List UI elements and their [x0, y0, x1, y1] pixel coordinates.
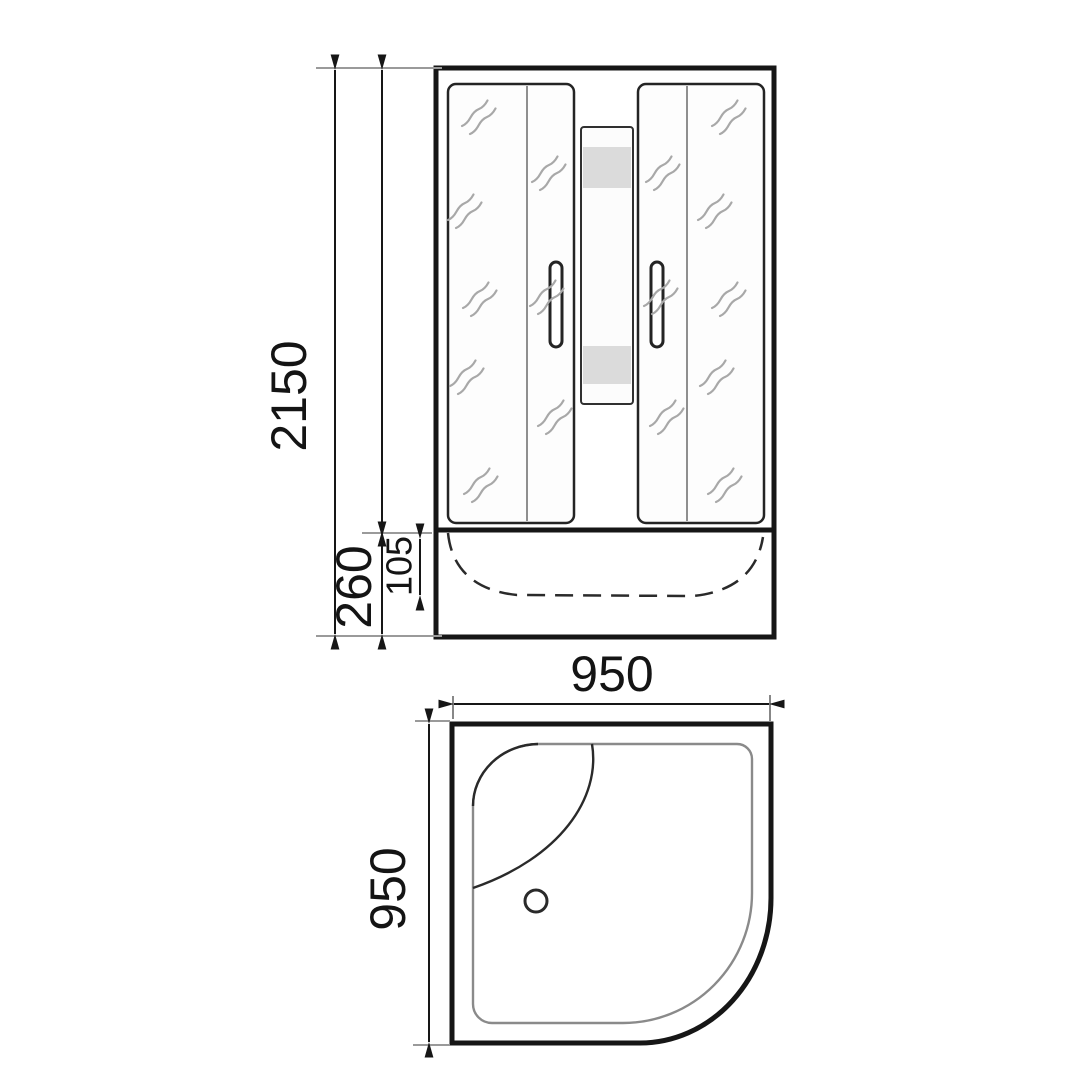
- plan-view: [452, 724, 771, 1043]
- drawing-page: 2150 260 105 950 950: [0, 0, 1080, 1080]
- dim-label-tray-inner-depth: 105: [379, 536, 420, 596]
- tray-outer-outline: [452, 724, 771, 1043]
- center-column-band-bottom: [583, 346, 631, 384]
- dim-label-total-height: 2150: [261, 340, 317, 451]
- front-view: [436, 68, 774, 637]
- dim-label-plan-depth: 950: [360, 847, 416, 930]
- front-view-dimensions: 2150 260 105: [261, 68, 442, 636]
- dim-label-plan-width: 950: [570, 646, 653, 702]
- dim-label-base-height: 260: [326, 545, 382, 628]
- technical-drawing-canvas: 2150 260 105 950 950: [0, 0, 1080, 1080]
- center-column-band-top: [583, 147, 631, 188]
- drain-hole: [525, 890, 547, 912]
- door-handle-left: [550, 262, 562, 347]
